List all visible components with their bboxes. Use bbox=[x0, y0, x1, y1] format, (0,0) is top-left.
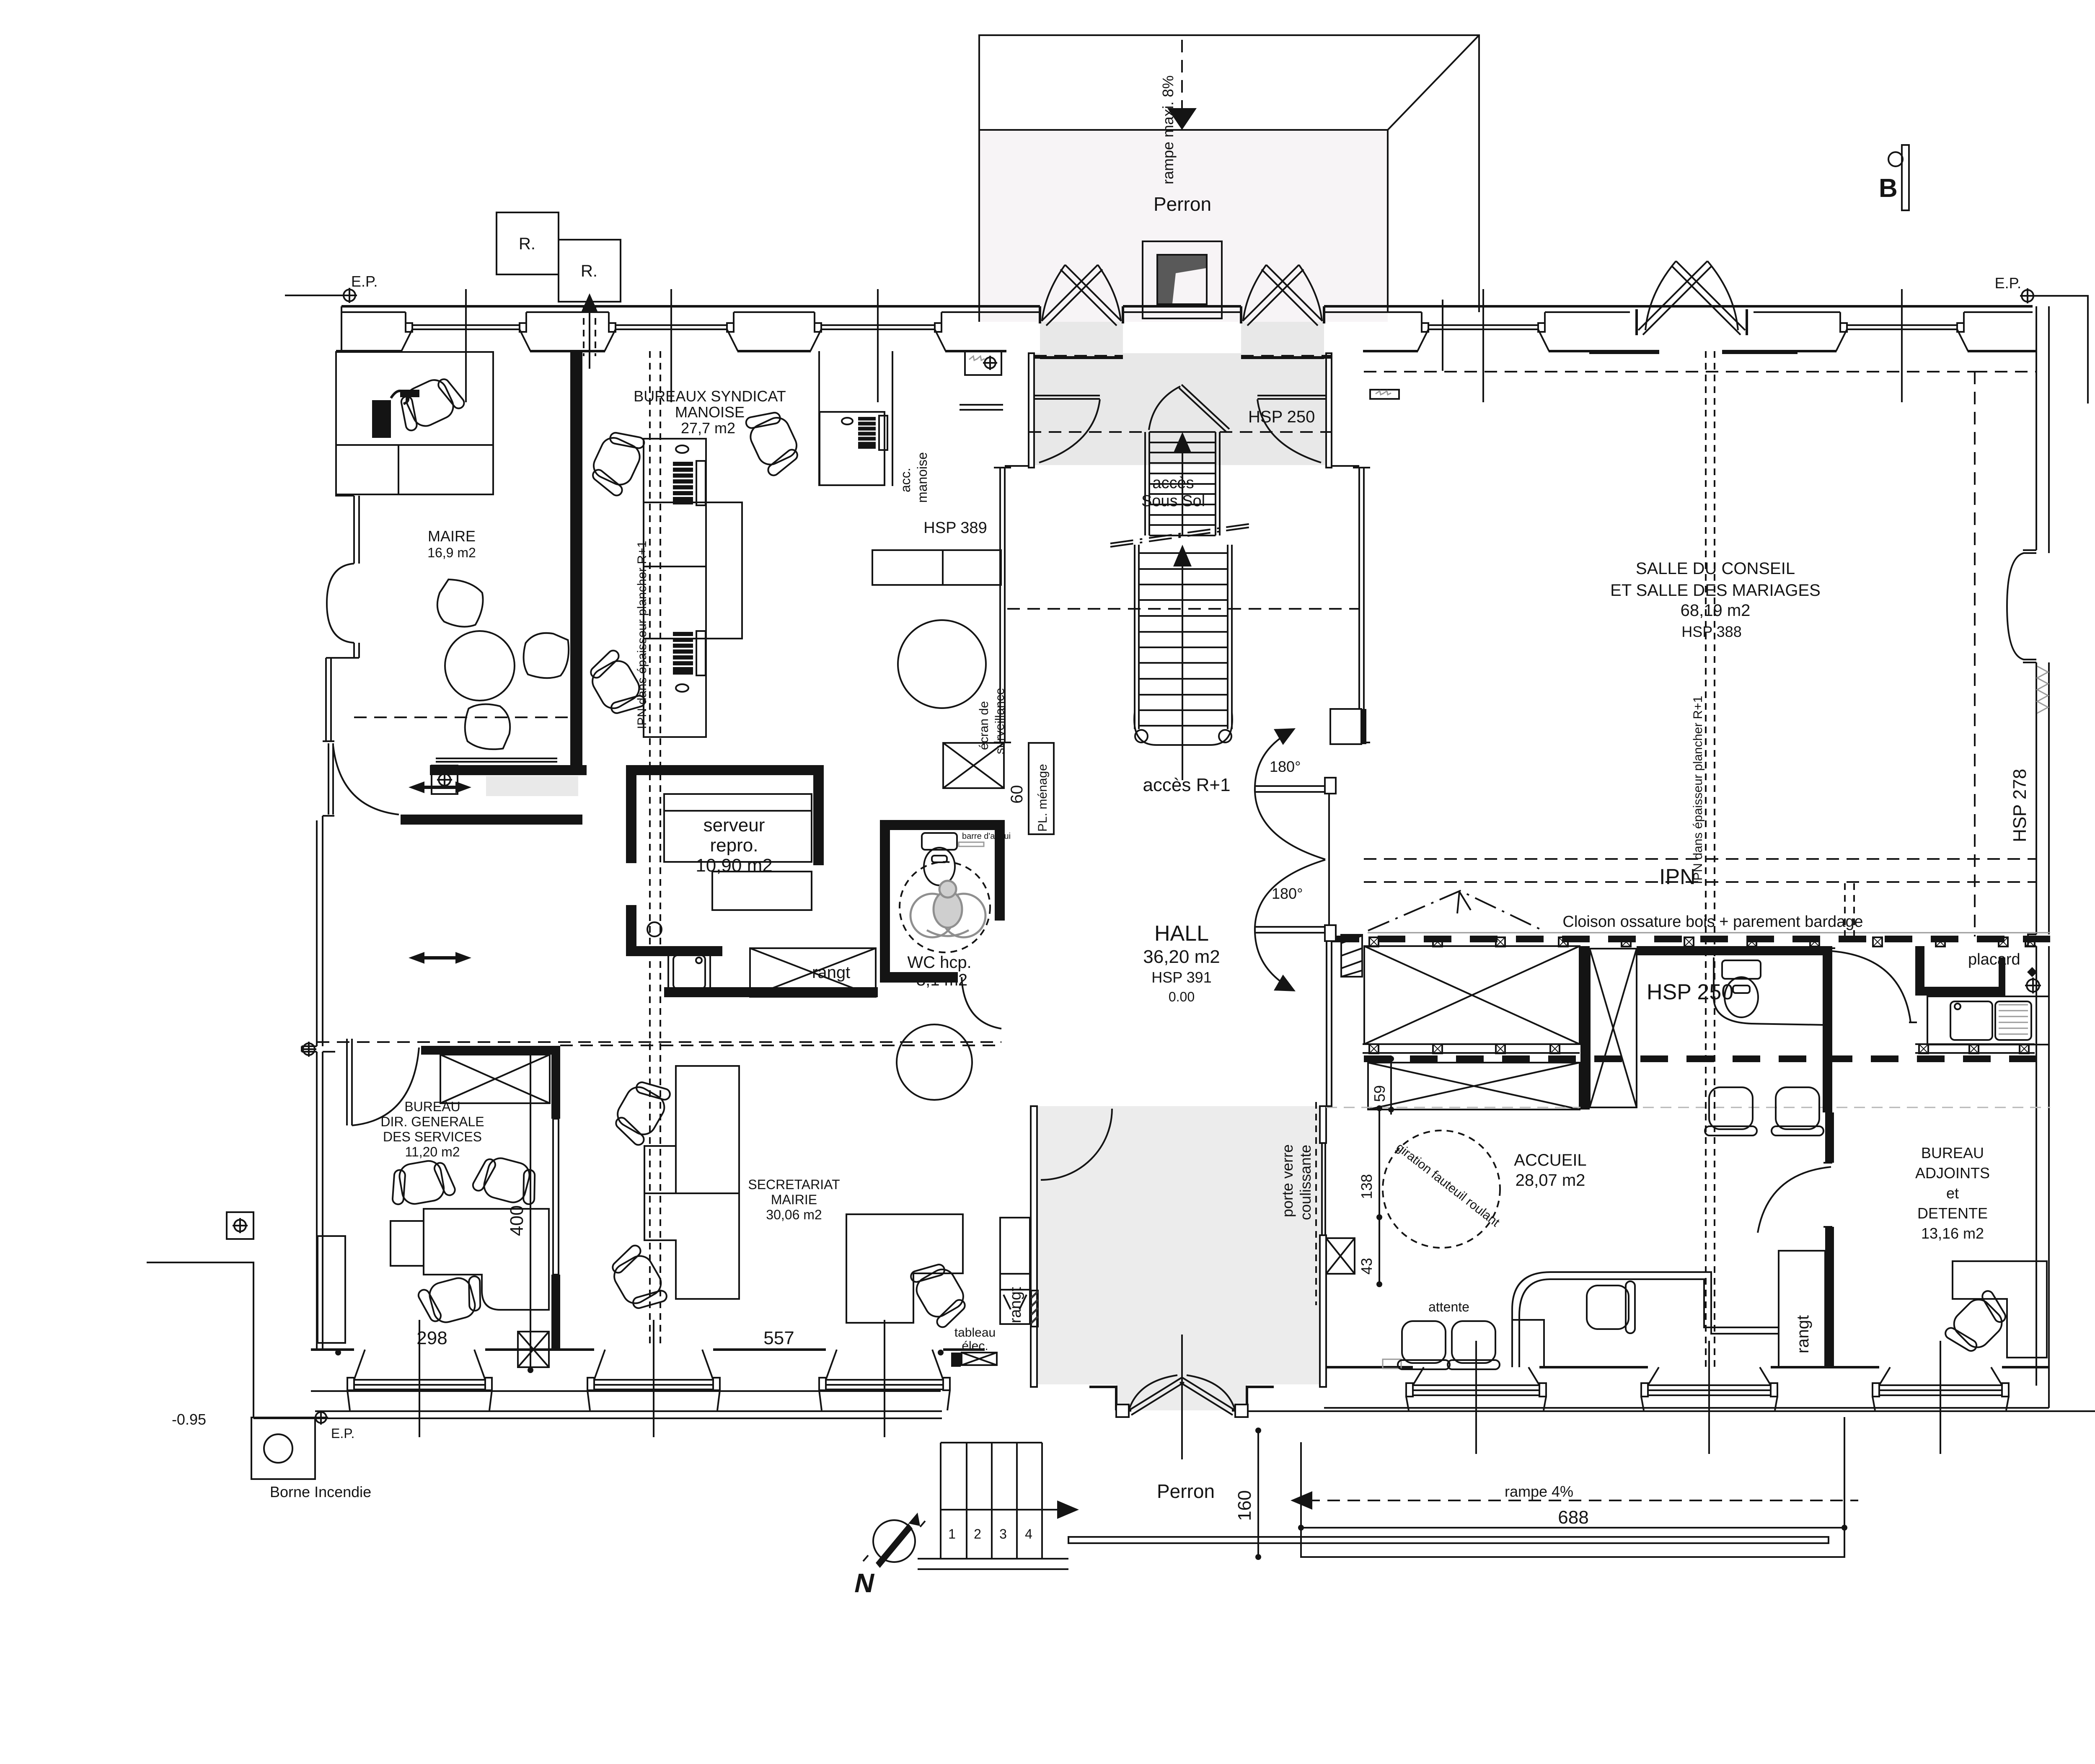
svg-text:HSP 250: HSP 250 bbox=[1248, 408, 1315, 426]
svg-text:HALL: HALL bbox=[1154, 921, 1209, 946]
svg-text:59: 59 bbox=[1371, 1085, 1388, 1102]
svg-text:ET SALLE DES MARIAGES: ET SALLE DES MARIAGES bbox=[1610, 581, 1821, 600]
svg-text:2: 2 bbox=[974, 1526, 981, 1542]
svg-text:60: 60 bbox=[1008, 785, 1026, 804]
svg-text:MAIRE: MAIRE bbox=[428, 528, 476, 545]
svg-text:180°: 180° bbox=[1272, 885, 1303, 902]
svg-text:élec.: élec. bbox=[962, 1339, 988, 1353]
svg-text:160: 160 bbox=[1234, 1490, 1255, 1521]
svg-text:porte verre: porte verre bbox=[1279, 1144, 1296, 1217]
svg-text:et: et bbox=[1946, 1185, 1959, 1202]
svg-text:27,7 m2: 27,7 m2 bbox=[681, 419, 735, 437]
svg-text:accès R+1: accès R+1 bbox=[1143, 775, 1230, 795]
svg-text:HSP 278: HSP 278 bbox=[2010, 769, 2030, 842]
svg-text:rampe maxi. 8%: rampe maxi. 8% bbox=[1159, 75, 1177, 184]
svg-text:PL. ménage: PL. ménage bbox=[1036, 764, 1050, 832]
svg-text:Perron: Perron bbox=[1157, 1480, 1215, 1502]
svg-text:acc.: acc. bbox=[898, 468, 913, 492]
svg-text:3: 3 bbox=[999, 1526, 1007, 1542]
svg-text:B: B bbox=[1879, 174, 1898, 203]
svg-text:180°: 180° bbox=[1270, 758, 1301, 775]
svg-text:557: 557 bbox=[763, 1328, 794, 1348]
svg-text:coulissante: coulissante bbox=[1297, 1145, 1314, 1220]
svg-text:30,06 m2: 30,06 m2 bbox=[766, 1207, 822, 1222]
svg-text:11,20 m2: 11,20 m2 bbox=[405, 1144, 460, 1159]
svg-text:E.P.: E.P. bbox=[351, 273, 378, 290]
svg-text:10,90 m2: 10,90 m2 bbox=[696, 855, 772, 876]
svg-text:rampe 4%: rampe 4% bbox=[1505, 1483, 1573, 1500]
svg-text:manoise: manoise bbox=[915, 452, 930, 503]
svg-text:138: 138 bbox=[1358, 1174, 1375, 1199]
svg-text:ACCUEIL: ACCUEIL bbox=[1514, 1151, 1586, 1169]
svg-text:BUREAUX SYNDICAT: BUREAUX SYNDICAT bbox=[634, 388, 786, 405]
svg-text:688: 688 bbox=[1558, 1507, 1588, 1528]
svg-text:tableau: tableau bbox=[954, 1326, 996, 1340]
svg-text:36,20 m2: 36,20 m2 bbox=[1143, 947, 1220, 967]
svg-text:3,1 m2: 3,1 m2 bbox=[916, 971, 967, 989]
svg-text:E.P.: E.P. bbox=[331, 1426, 354, 1441]
svg-text:IPN dans épaisseur plancher R+: IPN dans épaisseur plancher R+1 bbox=[1691, 696, 1705, 884]
svg-text:E.P.: E.P. bbox=[1995, 274, 2021, 292]
svg-text:DETENTE: DETENTE bbox=[1917, 1205, 1988, 1222]
svg-text:1: 1 bbox=[948, 1526, 956, 1542]
svg-text:MANOISE: MANOISE bbox=[675, 403, 745, 421]
svg-text:rangt: rangt bbox=[812, 963, 850, 982]
svg-text:68,19 m2: 68,19 m2 bbox=[1681, 601, 1751, 620]
svg-text:HSP 250: HSP 250 bbox=[1647, 980, 1733, 1004]
svg-text:R.: R. bbox=[519, 235, 535, 253]
svg-text:serveur: serveur bbox=[704, 815, 765, 835]
svg-text:placard: placard bbox=[1968, 951, 2020, 968]
svg-text:Cloison ossature bois + pareme: Cloison ossature bois + parement bardage bbox=[1562, 913, 1863, 931]
svg-text:16,9 m2: 16,9 m2 bbox=[427, 545, 476, 560]
svg-text:13,16 m2: 13,16 m2 bbox=[1921, 1225, 1984, 1242]
svg-text:28,07 m2: 28,07 m2 bbox=[1516, 1171, 1585, 1190]
svg-text:SECRETARIAT: SECRETARIAT bbox=[748, 1177, 840, 1192]
svg-text:HSP 391: HSP 391 bbox=[1151, 969, 1211, 986]
svg-text:DES SERVICES: DES SERVICES bbox=[383, 1129, 482, 1144]
svg-text:HSP 388: HSP 388 bbox=[1681, 623, 1741, 640]
svg-text:IPN: IPN bbox=[1659, 865, 1696, 889]
svg-text:attente: attente bbox=[1428, 1299, 1469, 1314]
svg-text:accès: accès bbox=[1152, 474, 1194, 492]
svg-text:Borne Incendie: Borne Incendie bbox=[270, 1483, 371, 1500]
svg-text:400: 400 bbox=[507, 1205, 527, 1236]
svg-text:BUREAU: BUREAU bbox=[1921, 1144, 1984, 1161]
svg-text:IPN dans épaisseur plancher R+: IPN dans épaisseur plancher R+1 bbox=[635, 541, 649, 729]
svg-text:DIR. GENERALE: DIR. GENERALE bbox=[380, 1114, 484, 1129]
svg-text:43: 43 bbox=[1358, 1258, 1375, 1275]
svg-text:WC hcp.: WC hcp. bbox=[907, 953, 971, 972]
svg-text:-0.95: -0.95 bbox=[172, 1411, 206, 1428]
svg-text:298: 298 bbox=[416, 1328, 447, 1348]
svg-text:R.: R. bbox=[581, 262, 597, 280]
svg-text:ADJOINTS: ADJOINTS bbox=[1915, 1164, 1990, 1182]
svg-text:HSP 389: HSP 389 bbox=[923, 519, 987, 537]
svg-text:SALLE DU CONSEIL: SALLE DU CONSEIL bbox=[1636, 559, 1795, 578]
svg-text:Perron: Perron bbox=[1154, 193, 1211, 215]
svg-text:Sous Sol: Sous Sol bbox=[1141, 492, 1205, 510]
svg-text:MAIRIE: MAIRIE bbox=[771, 1192, 817, 1207]
svg-text:écran de: écran de bbox=[977, 701, 991, 750]
svg-text:repro.: repro. bbox=[710, 835, 758, 856]
svg-text:0.00: 0.00 bbox=[1169, 989, 1195, 1004]
svg-text:rangt: rangt bbox=[1794, 1315, 1812, 1353]
svg-text:surveillance: surveillance bbox=[993, 688, 1007, 754]
svg-text:4: 4 bbox=[1025, 1526, 1032, 1542]
svg-text:BUREAU: BUREAU bbox=[404, 1099, 460, 1114]
svg-text:barre d'appui: barre d'appui bbox=[962, 832, 1011, 841]
